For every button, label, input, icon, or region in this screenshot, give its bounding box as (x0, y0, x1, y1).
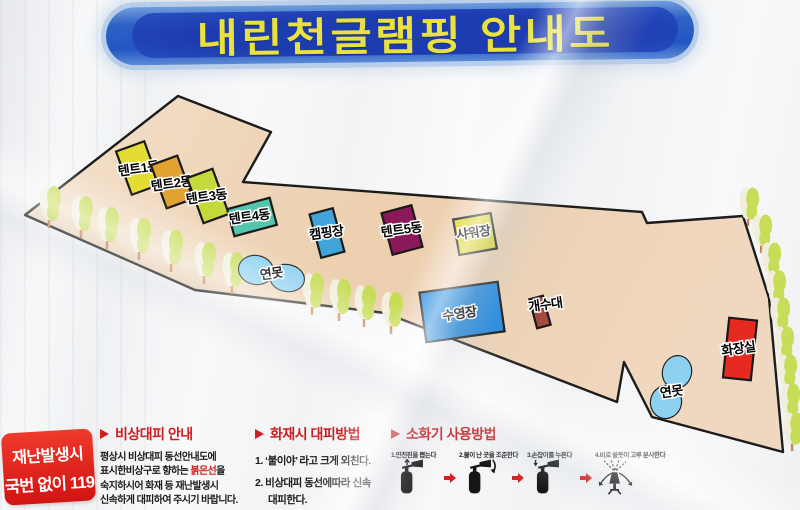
triangle-bullet-icon (100, 429, 109, 439)
page-title: 내린천글램핑 안내도 (196, 1, 614, 64)
step-arrow-icon (580, 471, 593, 489)
extinguisher-step-1: 1.안전핀을 뽑는다 (391, 449, 444, 496)
step-arrow-icon (444, 471, 457, 489)
fire-extinguisher-icon (393, 459, 430, 496)
section-evacuation-guide: 비상대피 안내 평상시 비상대피 동선안내도에표시한비상구로 향하는 붉은선을숙… (100, 424, 260, 509)
extinguisher-step-2: 2.불이 난 곳을 조준한다 (459, 449, 512, 496)
section-body: 1. ‘불이야’ 라고 크게 외친다.2. 비상대피 동선에따라 신속대피한다. (255, 453, 391, 507)
fire-extinguisher-icon (461, 459, 498, 496)
step-arrow-icon (512, 471, 525, 489)
title-banner: 내린천글램핑 안내도 (106, 0, 695, 65)
step-caption: 1.안전핀을 뽑는다 (391, 449, 444, 458)
triangle-bullet-icon (391, 429, 400, 439)
extinguisher-steps: 1.안전핀을 뽑는다2.불이 난 곳을 조준한다3.손잡이를 누른다4.비로 쓸… (391, 449, 646, 496)
step-caption: 2.불이 난 곳을 조준한다 (459, 449, 512, 458)
emergency-call-box: 재난발생시 국번 없이 119 (1, 428, 96, 505)
info-line: 대피한다. (268, 492, 391, 507)
fire-extinguisher-icon (597, 459, 634, 496)
extinguisher-step-4: 4.비로 쓸듯이 고루 분사한다 (595, 449, 667, 496)
section-extinguisher-usage: 소화기 사용방법 1.안전핀을 뽑는다2.불이 난 곳을 조준한다3.손잡이를 … (391, 424, 646, 496)
red-line-text: 붉은선 (190, 466, 216, 477)
section-header: 비상대피 안내 (100, 424, 260, 444)
section-title: 비상대피 안내 (115, 424, 193, 444)
step-caption: 3.손잡이를 누른다 (527, 449, 580, 458)
section-body: 평상시 비상대피 동선안내도에표시한비상구로 향하는 붉은선을숙지하시어 화재 … (100, 451, 260, 509)
tree-icon (303, 273, 325, 315)
tree-icon (355, 285, 377, 327)
tree-icon (330, 279, 352, 321)
info-line: 신속하게 대피하여 주시기 바랍니다. (100, 494, 260, 508)
step-caption: 4.비로 쓸듯이 고루 분사한다 (595, 449, 667, 458)
info-line: 2. 비상대피 동선에따라 신속 (255, 475, 391, 490)
section-header: 화재시 대피방법 (255, 424, 391, 444)
extinguisher-step-3: 3.손잡이를 누른다 (527, 449, 580, 496)
safety-info-panel: 재난발생시 국번 없이 119 비상대피 안내 평상시 비상대피 동선안내도에표… (0, 418, 800, 510)
info-line: 숙지하시어 화재 등 재난발생시 (100, 480, 260, 494)
info-line: 1. ‘불이야’ 라고 크게 외친다. (255, 453, 391, 468)
info-line: 표시한비상구로 향하는 붉은선을 (100, 465, 260, 479)
section-fire-evacuation: 화재시 대피방법 1. ‘불이야’ 라고 크게 외친다.2. 비상대피 동선에따… (255, 424, 391, 507)
tree-icon (382, 292, 404, 334)
section-title: 소화기 사용방법 (406, 424, 496, 444)
glamping-sign: 연못연못텐트1동텐트2동텐트3동텐트4동캠핑장텐트5동샤워장수영장개수대화장실 … (0, 0, 800, 510)
emergency-line2: 국번 없이 119 (3, 468, 95, 498)
fire-extinguisher-icon (529, 459, 566, 496)
emergency-line1: 재난발생시 (2, 439, 94, 469)
info-line: 평상시 비상대피 동선안내도에 (100, 451, 260, 465)
section-header: 소화기 사용방법 (391, 424, 646, 444)
section-title: 화재시 대피방법 (270, 424, 360, 444)
title-banner-inner: 내린천글램핑 안내도 (132, 7, 679, 59)
triangle-bullet-icon (255, 429, 264, 439)
